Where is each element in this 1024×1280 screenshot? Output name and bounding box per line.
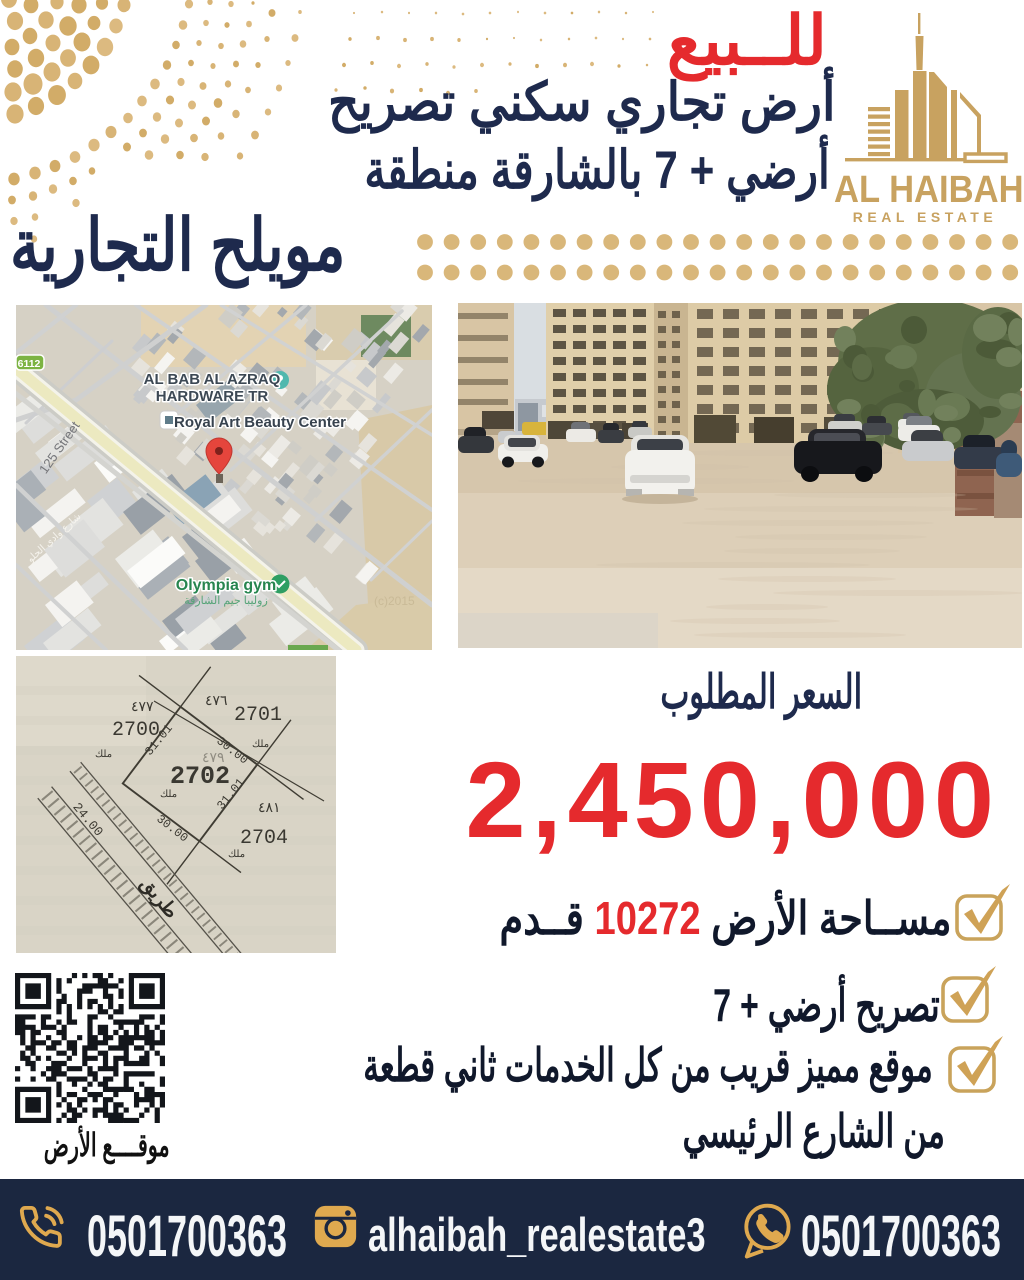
svg-text:6112: 6112 [18,358,41,370]
svg-text:زوليبا جيم الشارقة: زوليبا جيم الشارقة [184,595,268,607]
svg-text:(c)2015: (c)2015 [374,594,415,608]
svg-text:Royal Art Beauty Center: Royal Art Beauty Center [174,414,346,431]
svg-text:ملك: ملك [160,789,177,800]
svg-text:2702: 2702 [170,762,230,791]
svg-text:ملك: ملك [252,739,269,750]
svg-text:HARDWARE TR: HARDWARE TR [156,388,269,405]
svg-text:٤٧٧: ٤٧٧ [131,698,154,714]
svg-text:AL BAB AL AZRAQ: AL BAB AL AZRAQ [144,371,281,388]
svg-text:ملك: ملك [95,749,112,760]
svg-text:ملك: ملك [228,849,245,860]
svg-text:2704: 2704 [240,827,288,850]
svg-text:٤٧٩: ٤٧٩ [202,749,225,765]
svg-text:٤٧٦: ٤٧٦ [205,692,228,708]
svg-text:2701: 2701 [234,704,282,727]
svg-text:٤٨١: ٤٨١ [258,799,281,815]
svg-text:Olympia gym: Olympia gym [176,577,276,594]
